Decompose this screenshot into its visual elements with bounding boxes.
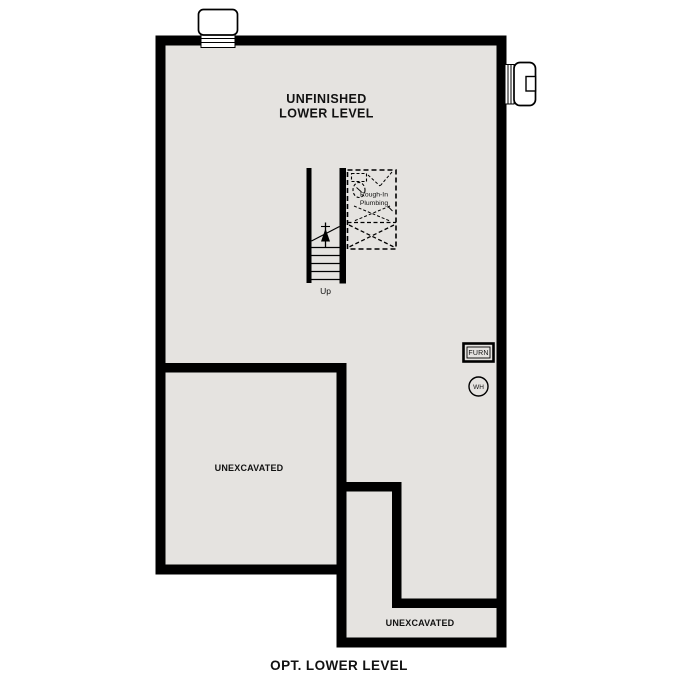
floor-plan-drawing: Up Rough-In Plu [0, 0, 687, 687]
water-heater-circle: WH [469, 377, 488, 396]
stairs-left-wall [307, 168, 312, 283]
fireplace-band [505, 65, 514, 105]
water-heater-label: WH [473, 384, 484, 391]
notch-vertical-wall [392, 482, 402, 608]
unexcavated-room-top-wall [156, 363, 347, 373]
notch-horizontal-wall [337, 482, 402, 492]
unexcavated-bottom-label: UNEXCAVATED [386, 618, 455, 628]
bump-out-top-box [199, 10, 238, 36]
floor-plan-page: Up Rough-In Plu [0, 0, 687, 687]
building-footprint [161, 41, 502, 643]
stairs-up-label: Up [320, 286, 331, 296]
main-area-label-line2: LOWER LEVEL [279, 107, 374, 121]
main-area-label-line1: UNFINISHED [286, 92, 366, 106]
unexcavated-left-label: UNEXCAVATED [215, 463, 284, 473]
unexcavated-room-right-wall [337, 363, 347, 648]
stairs-right-wall [340, 168, 347, 284]
furnace-label: FURN [468, 350, 488, 357]
rough-in-plumbing-label-line1: Rough-In [360, 192, 388, 199]
plan-caption: OPT. LOWER LEVEL [270, 658, 408, 673]
rough-in-plumbing-label-line2: Plumbing [360, 200, 389, 207]
bump-out-top [199, 10, 238, 48]
fireplace-bump-out [505, 63, 536, 106]
fireplace-notch [526, 77, 536, 92]
bottom-right-wall [392, 599, 507, 609]
bump-out-top-band [201, 34, 235, 48]
furnace-box: FURN [464, 344, 494, 362]
